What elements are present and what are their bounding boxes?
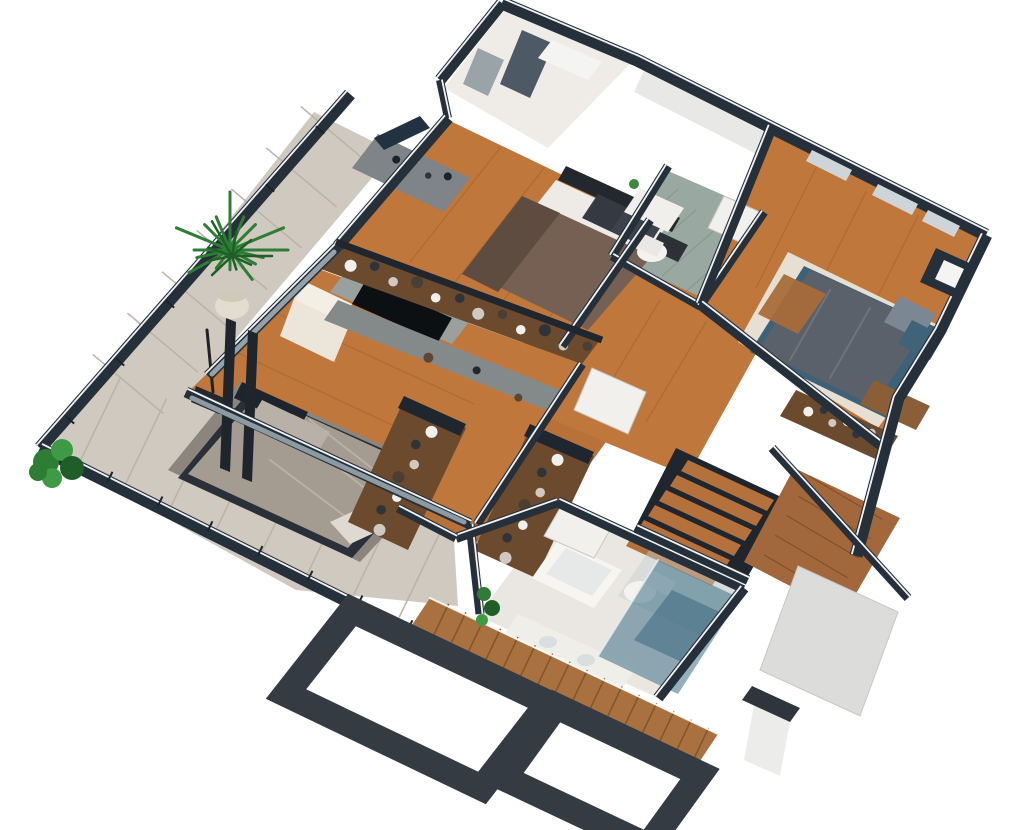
wardrobe-strip-clothes-5	[455, 293, 465, 303]
corner-shrub-3	[60, 456, 84, 480]
wc-plant	[629, 179, 639, 189]
walkin-wardrobe2-clothes-6	[500, 552, 512, 564]
wardrobe-strip-clothes-9	[539, 324, 551, 336]
walkin-wardrobe2-clothes-0	[552, 454, 564, 466]
bathroom2-sink-1	[539, 636, 557, 648]
walkin-wardrobe1-clothes-0	[426, 426, 438, 438]
wardrobe-strip-clothes-8	[516, 325, 526, 335]
walkin-wardrobe1-clothes-6	[374, 524, 386, 536]
walkin-wardrobe1-clothes-3	[392, 471, 404, 483]
bathroom2-sink-2	[577, 654, 595, 666]
walkin-wardrobe2-clothes-2	[535, 488, 545, 498]
wardrobe-strip-clothes-11	[583, 341, 593, 351]
terrace-plant-pot-rim	[218, 290, 246, 302]
tv-console-items-2	[514, 394, 522, 402]
bedroom1-console-items-2	[425, 172, 431, 178]
floorplan-svg	[0, 0, 1024, 830]
wardrobe-strip-clothes-7	[498, 309, 508, 319]
bathroom2-plant-1	[477, 587, 491, 601]
corner-shrub-5	[29, 463, 47, 481]
wardrobe-strip-clothes-3	[411, 276, 423, 288]
tv-console-items-1	[473, 366, 481, 374]
stair-base-wall	[760, 566, 898, 716]
bedroom1-console-items-0	[392, 156, 400, 164]
wardrobe-strip-clothes-6	[472, 308, 484, 320]
walkin-wardrobe1-clothes-5	[376, 505, 386, 515]
tv-console-items-0	[423, 353, 433, 363]
walkin-wardrobe1-clothes-2	[409, 460, 419, 470]
bathroom2-plant-3	[476, 614, 488, 626]
wardrobe-strip-clothes-1	[370, 261, 380, 271]
bedroom1-console-items-3	[444, 172, 452, 180]
walkin-wardrobe2-clothes-4	[518, 520, 528, 530]
bedroom3-closet-clothes-2	[828, 419, 836, 427]
floorplan-canvas	[0, 0, 1024, 830]
walkin-wardrobe2-clothes-5	[502, 533, 512, 543]
walkin-wardrobe1-clothes-1	[411, 440, 421, 450]
walkin-wardrobe2-clothes-1	[537, 468, 547, 478]
wardrobe-strip-clothes-4	[431, 293, 441, 303]
wardrobe-strip-clothes-2	[388, 277, 398, 287]
wardrobe-strip-clothes-0	[345, 260, 357, 272]
bedroom3-closet-clothes-0	[803, 407, 813, 417]
bathroom2-plant-2	[484, 600, 500, 616]
